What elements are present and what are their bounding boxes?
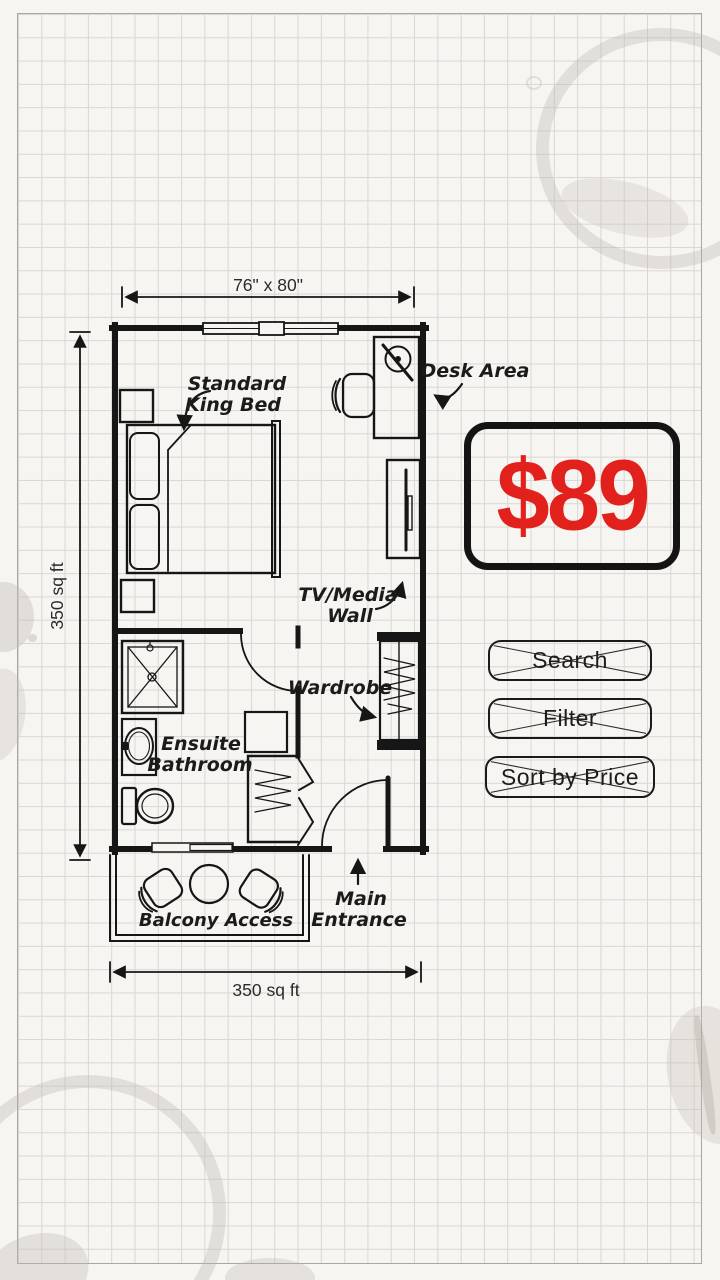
balcony-door [152, 843, 233, 852]
dimension-top-label: 76" x 80" [233, 275, 303, 295]
screen: 76" x 80" 350 sq ft 350 sq ft Standard K… [0, 0, 720, 1280]
sort-by-price-button[interactable]: Sort by Price [485, 756, 655, 798]
label-bath-line1: Ensuite [161, 733, 241, 755]
closet [245, 712, 313, 845]
window-top [203, 322, 338, 335]
balcony-table [190, 865, 228, 903]
search-button-label: Search [532, 647, 608, 674]
balcony-chair-left [133, 866, 185, 916]
label-balcony: Balcony Access [139, 910, 294, 931]
label-tv-line2: Wall [327, 605, 373, 627]
toilet [122, 788, 173, 824]
sort-by-price-button-label: Sort by Price [501, 764, 639, 791]
label-bed-line1: Standard [188, 373, 287, 395]
dimension-bottom-label: 350 sq ft [232, 980, 299, 1000]
nightstand-bottom [121, 580, 154, 612]
price-badge: $89 [464, 422, 680, 570]
dimension-bottom [110, 962, 421, 982]
tv-unit [387, 460, 420, 558]
label-bath-line2: Bathroom [147, 754, 252, 776]
dimension-left [70, 332, 90, 860]
label-entrance-line2: Entrance [311, 909, 407, 931]
bed [127, 421, 280, 577]
label-desk-area: Desk Area [421, 360, 530, 382]
desk [374, 337, 419, 438]
desk-lamp-icon [383, 345, 412, 380]
label-entrance-line1: Main [335, 888, 387, 910]
price-text: $89 [496, 439, 647, 553]
label-wardrobe: Wardrobe [288, 677, 392, 699]
label-tv-line1: TV/Media [298, 584, 397, 606]
filter-button-label: Filter [543, 705, 597, 732]
wardrobe-arrow [351, 697, 374, 717]
search-button[interactable]: Search [488, 640, 652, 681]
nightstand-top [120, 390, 153, 422]
shower [122, 641, 183, 713]
dimension-left-label: 350 sq ft [47, 562, 67, 629]
entrance-door [322, 778, 388, 846]
filter-button[interactable]: Filter [488, 698, 652, 739]
desk-area-arrow [436, 384, 462, 398]
balcony-chair-right [237, 866, 289, 916]
label-bed-line2: King Bed [185, 394, 281, 416]
desk-chair [332, 374, 374, 417]
